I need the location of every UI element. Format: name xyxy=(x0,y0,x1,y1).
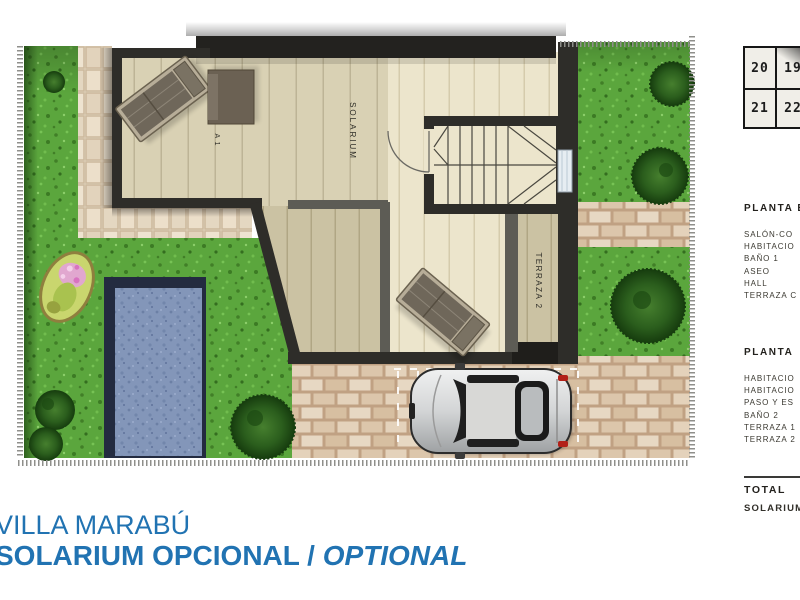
tree xyxy=(611,269,685,343)
car-mirror xyxy=(455,452,465,459)
room-item: ASEO xyxy=(744,266,800,278)
plot-cell: 20 xyxy=(745,48,775,88)
room-item: HABITACIO xyxy=(744,385,796,397)
taillight xyxy=(558,441,568,447)
tree xyxy=(632,148,688,204)
tree xyxy=(650,62,694,106)
terraza-1-label: A 1 xyxy=(213,133,220,146)
plot-cell: 21 xyxy=(745,90,775,127)
bush xyxy=(29,427,63,461)
site-key-grid: 20 19 21 22 2 xyxy=(743,46,800,129)
room-item: TERRAZA 2 xyxy=(744,434,796,446)
room-item: HALL xyxy=(744,278,800,290)
floor-plan-page: { "site_key": { "rows": [["20","19"],["2… xyxy=(0,0,800,600)
car-mirror xyxy=(455,363,465,370)
planta-primera-section: PLANTA HABITACIO HABITACIO PASO Y ES BAÑ… xyxy=(744,347,796,446)
top-band-wall xyxy=(196,36,556,58)
pool xyxy=(104,277,206,458)
pool-water xyxy=(115,288,202,456)
total-section: TOTAL SOLARIUM xyxy=(744,476,800,514)
room-item: PASO Y ES xyxy=(744,397,796,409)
bush xyxy=(35,390,75,430)
terraza-2-label: TERRAZA 2 xyxy=(534,252,543,309)
table xyxy=(208,66,259,124)
villa-title: VILLA MARABÚ xyxy=(0,510,190,541)
room-item: TERRAZA 1 xyxy=(744,422,796,434)
room-item: SALÓN-CO xyxy=(744,229,800,241)
room-item: BAÑO 1 xyxy=(744,253,800,265)
room-item: BAÑO 2 xyxy=(744,410,796,422)
band-inner-shadow xyxy=(196,58,556,64)
room-item: HABITACIO xyxy=(744,241,800,253)
solarium-label: SOLARIUM xyxy=(348,102,357,160)
plot-cell: 19 xyxy=(777,48,800,88)
hedge-shadow xyxy=(24,46,38,458)
plot-cell: 22 xyxy=(777,90,800,127)
subtitle-main: SOLARIUM OPCIONAL / xyxy=(0,540,323,571)
car xyxy=(409,363,573,459)
room-item: TERRAZA C xyxy=(744,290,800,302)
planta-primera-heading: PLANTA xyxy=(744,347,796,358)
stair-window xyxy=(558,150,572,192)
subtitle-optional: OPTIONAL xyxy=(323,540,468,571)
left-wall xyxy=(112,48,122,208)
total-item: SOLARIUM xyxy=(744,503,800,514)
plan-subtitle: SOLARIUM OPCIONAL / OPTIONAL xyxy=(0,540,467,572)
room-item: HABITACIO xyxy=(744,373,796,385)
bush xyxy=(231,395,295,459)
taillight xyxy=(558,375,568,381)
car-roof xyxy=(466,383,516,439)
divider xyxy=(744,476,800,478)
total-heading: TOTAL xyxy=(744,484,800,496)
planta-baja-heading: PLANTA B xyxy=(744,203,800,214)
right-path xyxy=(578,202,690,247)
bush xyxy=(43,71,65,93)
planta-baja-section: PLANTA B SALÓN-CO HABITACIO BAÑO 1 ASEO … xyxy=(744,203,800,302)
